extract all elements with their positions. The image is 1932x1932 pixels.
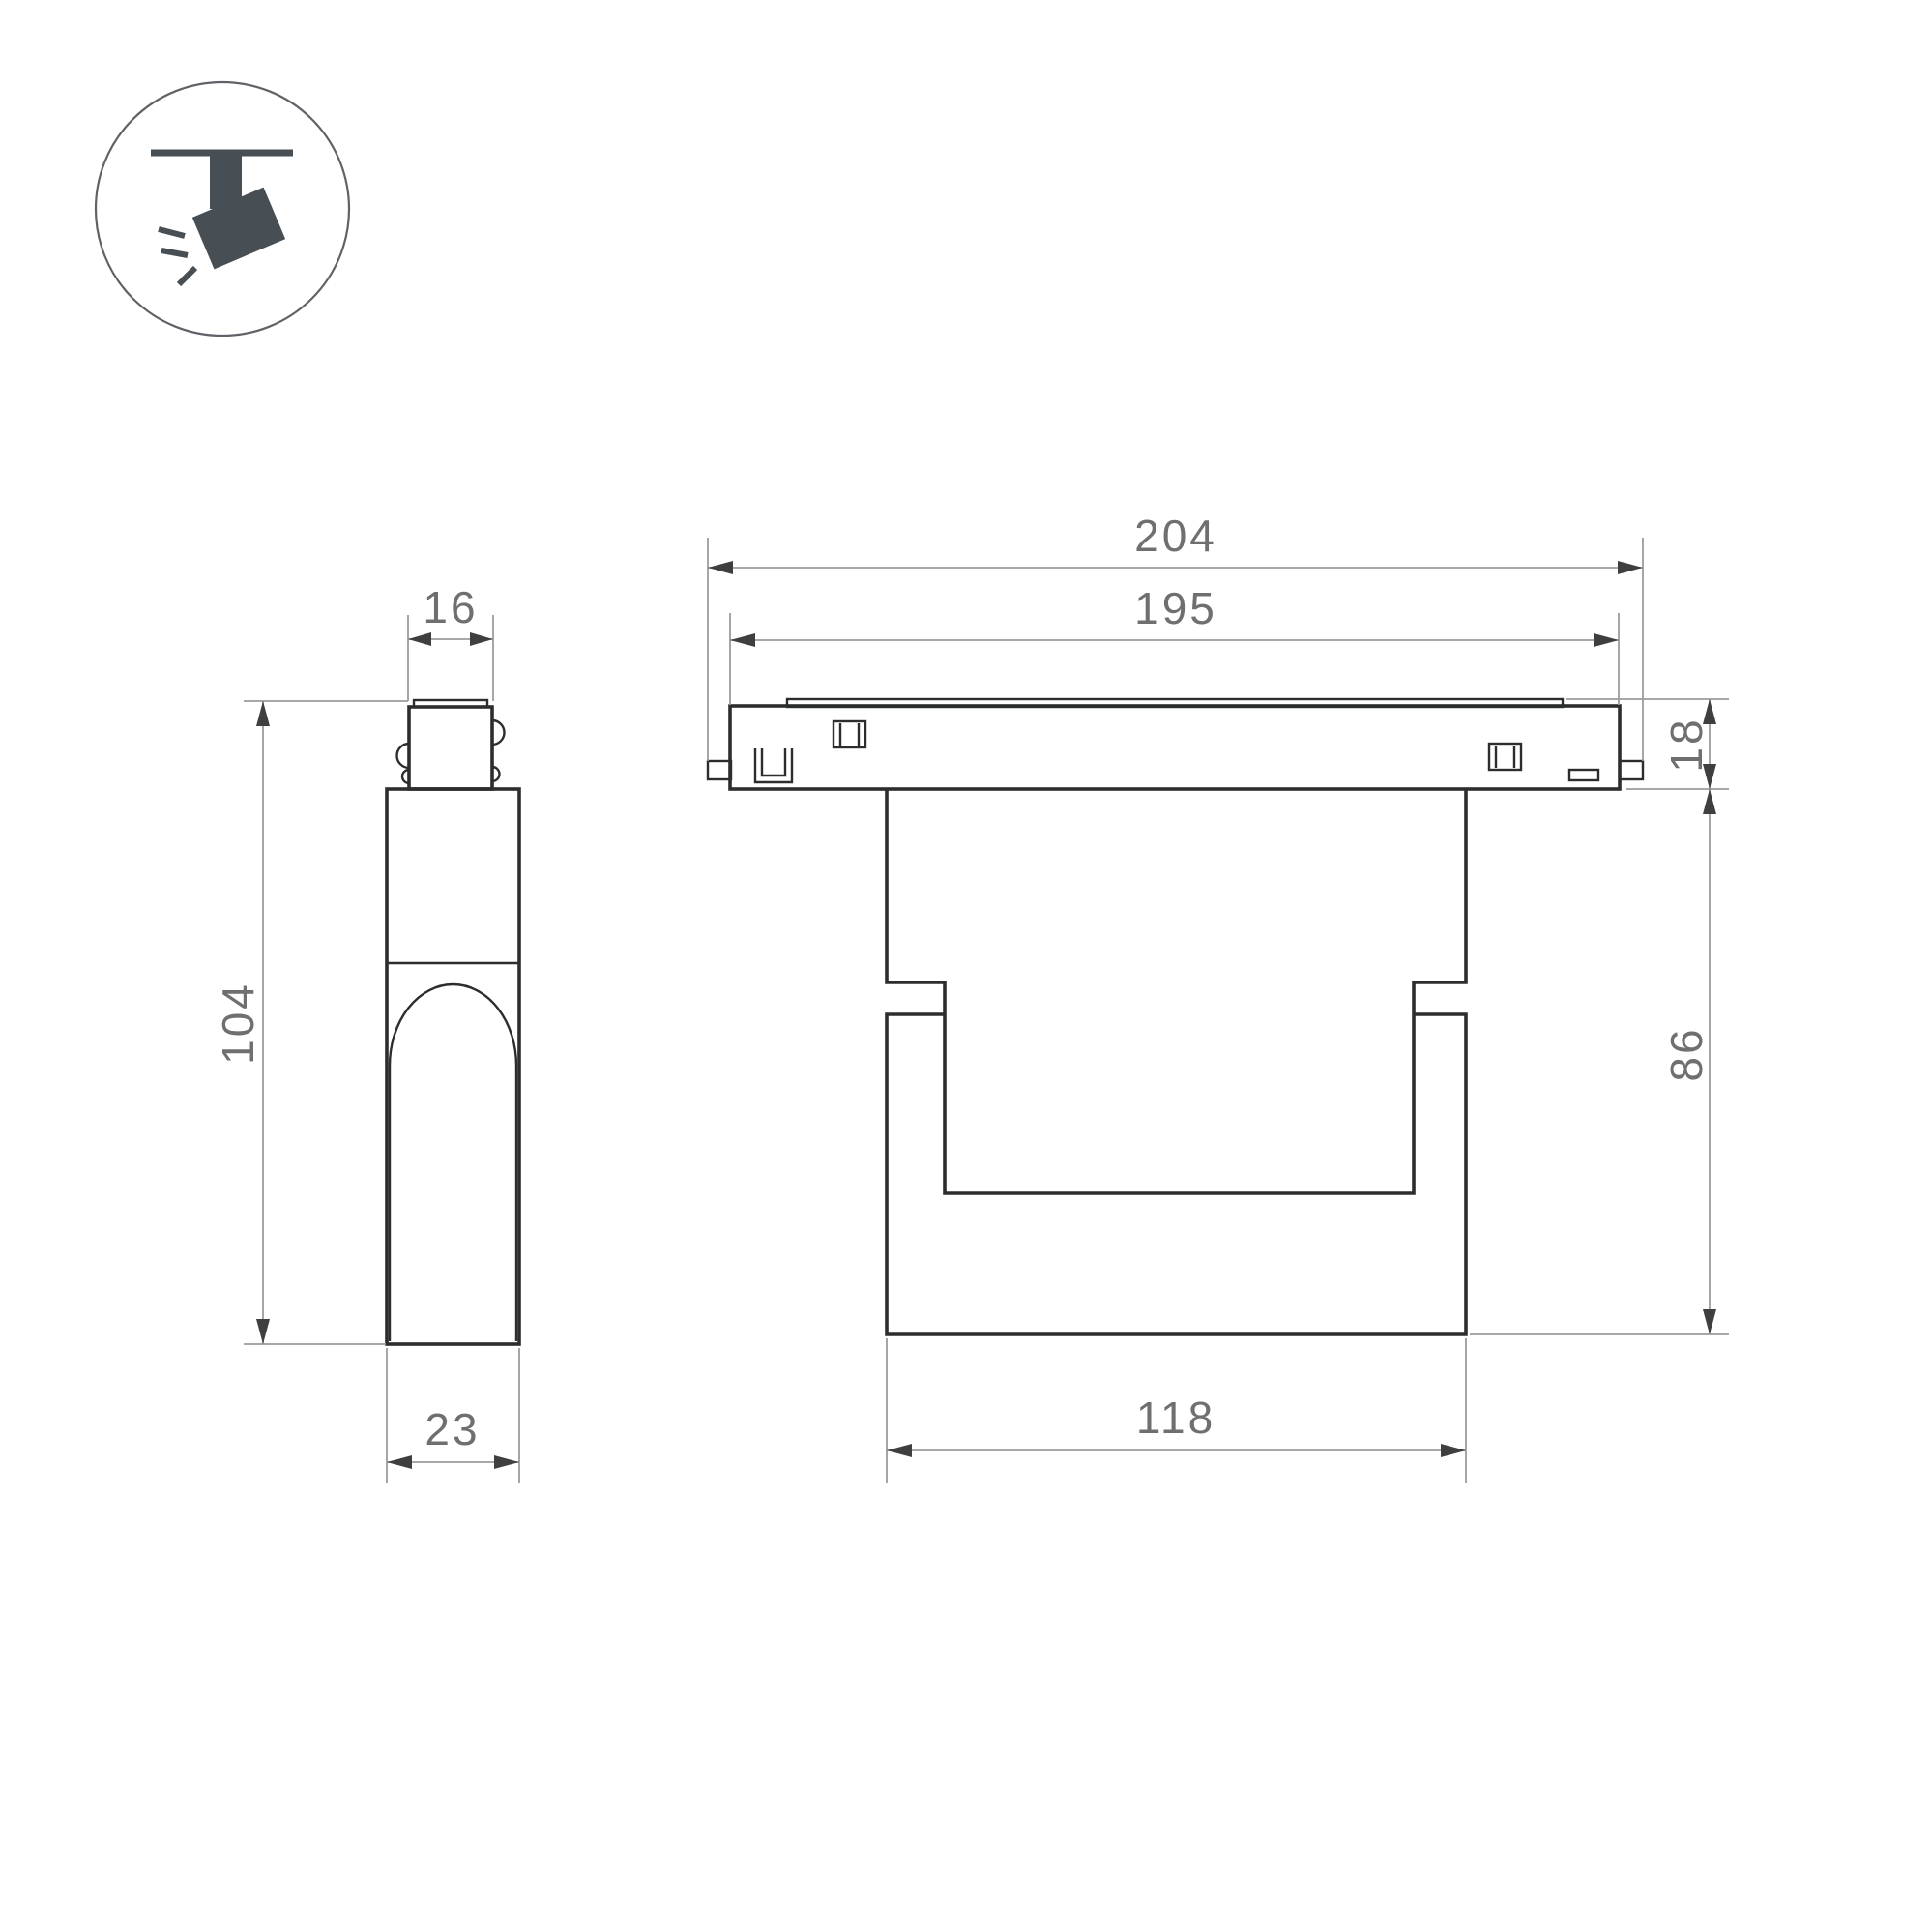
drawing-page: 16 104 23	[0, 0, 1932, 1932]
dim-text-18: 18	[1661, 717, 1712, 772]
front-view: 204 195 18 86	[708, 511, 1729, 1483]
dim-text-104: 104	[213, 981, 263, 1065]
dimension-track-length: 195	[730, 583, 1619, 705]
dimension-overall-length: 204	[708, 511, 1643, 761]
front-right-pin	[1620, 761, 1643, 779]
front-u-clip	[755, 748, 792, 782]
dimension-adapter-width: 16	[408, 582, 493, 701]
dim-text-23: 23	[424, 1404, 480, 1454]
dimension-body-height: 86	[1470, 789, 1729, 1334]
track-spotlight-icon	[96, 82, 349, 336]
side-view: 16 104 23	[213, 582, 519, 1483]
front-left-pin	[708, 761, 731, 779]
dim-text-195: 195	[1134, 583, 1217, 633]
dimension-track-height: 18	[1566, 699, 1729, 789]
side-track-adapter	[409, 707, 492, 789]
adapter-clip-right-upper	[492, 720, 504, 745]
dimension-total-height: 104	[213, 701, 408, 1344]
front-body-upper	[887, 789, 1466, 1193]
side-lens-dome	[390, 984, 516, 1341]
dim-text-118: 118	[1136, 1392, 1215, 1443]
side-lamp-body	[387, 789, 519, 1344]
adapter-clip-left-upper	[397, 744, 410, 768]
front-right-window	[1489, 744, 1521, 770]
dimension-body-depth: 23	[387, 1348, 519, 1483]
dim-text-86: 86	[1661, 1026, 1712, 1081]
dim-text-16: 16	[423, 582, 478, 632]
front-right-slot	[1569, 770, 1598, 780]
front-left-window	[834, 721, 865, 747]
dimension-body-width: 118	[887, 1338, 1466, 1483]
technical-drawing-canvas: 16 104 23	[0, 0, 1932, 1932]
front-body-lower	[887, 1014, 1466, 1334]
dim-text-204: 204	[1134, 511, 1217, 561]
